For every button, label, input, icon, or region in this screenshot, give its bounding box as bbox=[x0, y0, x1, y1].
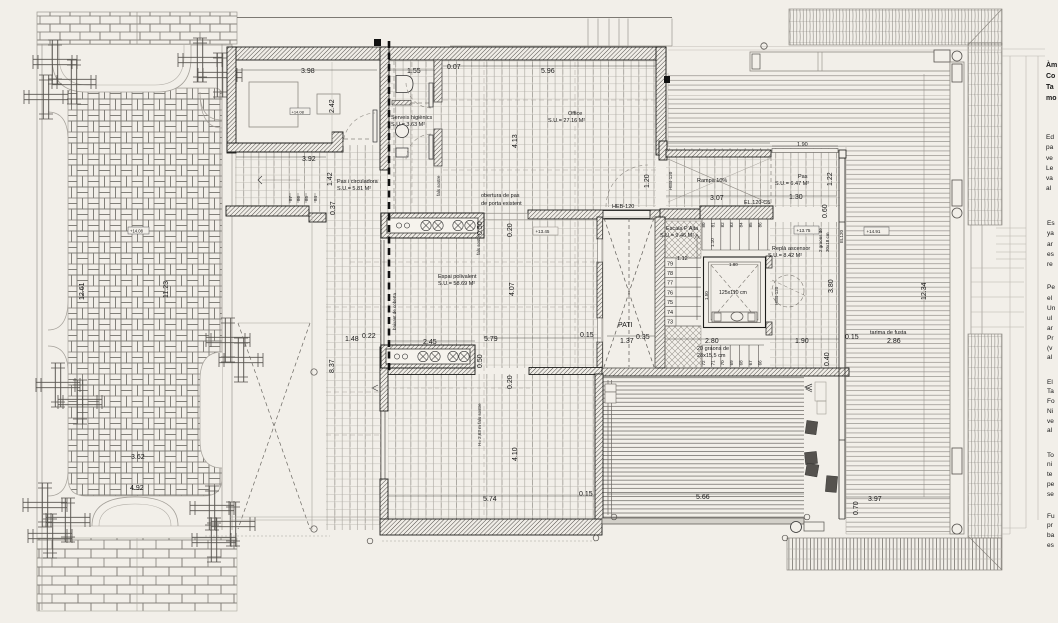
svg-text:ya: ya bbox=[1047, 230, 1054, 237]
svg-text:72: 72 bbox=[701, 360, 706, 366]
svg-text:28x15,5 cm: 28x15,5 cm bbox=[697, 353, 726, 359]
svg-text:Serveis higiènics: Serveis higiènics bbox=[391, 115, 433, 121]
svg-text:ve: ve bbox=[1046, 155, 1053, 162]
svg-text:Es: Es bbox=[1047, 220, 1055, 227]
svg-text:0.15: 0.15 bbox=[845, 334, 859, 341]
svg-text:87: 87 bbox=[288, 195, 293, 201]
svg-text:obertura de pas: obertura de pas bbox=[481, 193, 520, 199]
svg-text:5.74: 5.74 bbox=[483, 496, 497, 503]
svg-text:71: 71 bbox=[710, 360, 715, 366]
svg-text:fals sostre: fals sostre bbox=[476, 234, 481, 255]
svg-text:1.30: 1.30 bbox=[789, 194, 803, 201]
svg-text:de porta existent: de porta existent bbox=[481, 201, 522, 207]
svg-text:EL.120-C5: EL.120-C5 bbox=[744, 200, 770, 206]
svg-text:Un: Un bbox=[1047, 305, 1056, 312]
svg-text:125x110 cm: 125x110 cm bbox=[719, 290, 747, 296]
svg-text:0.22: 0.22 bbox=[362, 333, 376, 340]
svg-text:4.07: 4.07 bbox=[509, 282, 516, 296]
svg-text:HEB-120: HEB-120 bbox=[774, 286, 779, 305]
svg-text:0.15: 0.15 bbox=[579, 491, 593, 498]
svg-text:66: 66 bbox=[757, 360, 762, 366]
svg-text:1.80: 1.80 bbox=[729, 262, 738, 267]
svg-text:S.U.= 9.46 M²: S.U.= 9.46 M² bbox=[660, 233, 694, 239]
svg-text:78: 78 bbox=[667, 271, 673, 277]
svg-text:S.U.= 6.47 M²: S.U.= 6.47 M² bbox=[775, 181, 809, 187]
svg-text:12.34: 12.34 bbox=[921, 282, 928, 300]
svg-text:1.20: 1.20 bbox=[644, 174, 651, 188]
svg-text:ul: ul bbox=[1047, 315, 1053, 322]
svg-text:Ta: Ta bbox=[1047, 388, 1054, 395]
svg-text:re: re bbox=[1047, 261, 1053, 268]
svg-text:75: 75 bbox=[667, 300, 673, 306]
svg-text:86: 86 bbox=[757, 222, 762, 228]
svg-text:baixant de coberta: baixant de coberta bbox=[392, 292, 397, 330]
svg-text:0.50: 0.50 bbox=[477, 221, 484, 235]
svg-text:Rampa 10%: Rampa 10% bbox=[697, 178, 727, 184]
svg-text:S.U.= 8.42 M²: S.U.= 8.42 M² bbox=[768, 253, 802, 259]
svg-text:81: 81 bbox=[710, 222, 715, 228]
svg-text:79: 79 bbox=[667, 262, 673, 268]
svg-text:30x18 cm: 30x18 cm bbox=[825, 232, 830, 252]
svg-text:0.50: 0.50 bbox=[477, 354, 484, 368]
svg-text:1.48: 1.48 bbox=[345, 336, 359, 343]
svg-text:0.07: 0.07 bbox=[447, 64, 461, 71]
svg-text:73: 73 bbox=[667, 320, 673, 326]
svg-text:77: 77 bbox=[667, 281, 673, 287]
svg-text:+14.08: +14.08 bbox=[292, 109, 305, 114]
svg-text:3.80: 3.80 bbox=[828, 279, 835, 293]
svg-text:1.50: 1.50 bbox=[704, 291, 709, 300]
svg-text:68: 68 bbox=[739, 360, 744, 366]
svg-text:2.86: 2.86 bbox=[887, 338, 901, 345]
svg-text:Àm: Àm bbox=[1046, 60, 1057, 69]
svg-text:12.61: 12.61 bbox=[79, 282, 86, 300]
svg-text:se: se bbox=[1047, 491, 1054, 498]
svg-text:HEB-120: HEB-120 bbox=[612, 204, 634, 210]
svg-text:5.79: 5.79 bbox=[484, 336, 498, 343]
svg-text:1.90: 1.90 bbox=[797, 142, 808, 148]
svg-text:ni: ni bbox=[1047, 461, 1052, 468]
svg-text:ba: ba bbox=[1047, 532, 1055, 539]
svg-text:+13.75: +13.75 bbox=[797, 228, 811, 233]
svg-text:Ta: Ta bbox=[1046, 84, 1054, 91]
svg-text:te: te bbox=[1047, 471, 1053, 478]
svg-text:S.U.= 5.81 M²: S.U.= 5.81 M² bbox=[337, 186, 371, 192]
svg-text:84: 84 bbox=[313, 195, 318, 201]
svg-text:0.35: 0.35 bbox=[636, 334, 650, 341]
svg-text:8.37: 8.37 bbox=[329, 359, 336, 373]
svg-text:0.20: 0.20 bbox=[507, 223, 514, 237]
svg-text:Fo: Fo bbox=[1047, 398, 1055, 405]
svg-text:Co: Co bbox=[1046, 73, 1055, 80]
svg-text:0.60: 0.60 bbox=[822, 204, 829, 218]
svg-text:+14.08: +14.08 bbox=[130, 229, 144, 234]
svg-text:2.42: 2.42 bbox=[329, 99, 336, 113]
svg-text:3.98: 3.98 bbox=[301, 68, 315, 75]
svg-text:Office: Office bbox=[568, 111, 582, 117]
svg-text:EL120: EL120 bbox=[839, 229, 844, 243]
svg-text:74: 74 bbox=[667, 310, 673, 316]
svg-text:pr: pr bbox=[1047, 522, 1054, 529]
svg-text:3.62: 3.62 bbox=[131, 454, 145, 461]
svg-text:+13.45: +13.45 bbox=[536, 229, 550, 234]
svg-text:+14.91: +14.91 bbox=[867, 229, 881, 234]
svg-text:0.40: 0.40 bbox=[824, 352, 831, 366]
svg-text:HEB-120: HEB-120 bbox=[668, 171, 673, 190]
svg-text:1.22: 1.22 bbox=[827, 172, 834, 186]
svg-text:es: es bbox=[1047, 251, 1055, 258]
svg-text:Pr: Pr bbox=[1047, 335, 1054, 342]
svg-text:al: al bbox=[1047, 354, 1053, 361]
svg-text:69: 69 bbox=[729, 360, 734, 366]
svg-text:Pas: Pas bbox=[798, 174, 808, 180]
svg-text:5.96: 5.96 bbox=[541, 68, 555, 75]
svg-text:1.37: 1.37 bbox=[620, 338, 634, 345]
svg-text:ar: ar bbox=[1047, 241, 1054, 248]
svg-text:al: al bbox=[1047, 427, 1053, 434]
svg-text:84: 84 bbox=[739, 222, 744, 228]
svg-text:el: el bbox=[1047, 295, 1053, 302]
svg-text:es: es bbox=[1047, 542, 1055, 549]
svg-text:82: 82 bbox=[720, 222, 725, 228]
svg-text:11.23: 11.23 bbox=[163, 281, 170, 298]
svg-text:S.U.= 58.69 M²: S.U.= 58.69 M² bbox=[438, 281, 475, 287]
svg-text:4.13: 4.13 bbox=[512, 134, 519, 148]
svg-text:76: 76 bbox=[667, 290, 673, 296]
svg-text:4.10: 4.10 bbox=[512, 447, 519, 461]
svg-text:Fu: Fu bbox=[1047, 513, 1055, 520]
svg-text:Replà ascensor: Replà ascensor bbox=[772, 246, 810, 252]
svg-text:S.U.= 3.63 M²: S.U.= 3.63 M² bbox=[391, 122, 425, 128]
svg-text:Espai polivalent: Espai polivalent bbox=[438, 274, 477, 280]
svg-text:H= 2,63 m fals sostre: H= 2,63 m fals sostre bbox=[477, 403, 482, 446]
svg-text:5.66: 5.66 bbox=[696, 494, 710, 501]
svg-text:To: To bbox=[1047, 452, 1054, 459]
svg-text:70: 70 bbox=[720, 360, 725, 366]
svg-text:83: 83 bbox=[729, 222, 734, 228]
svg-text:86: 86 bbox=[296, 195, 301, 201]
svg-text:ve: ve bbox=[1047, 418, 1054, 425]
svg-text:Escala P Alta: Escala P Alta bbox=[666, 226, 699, 232]
svg-text:mo: mo bbox=[1046, 95, 1057, 102]
svg-text:4.92: 4.92 bbox=[130, 485, 144, 492]
svg-text:Ed: Ed bbox=[1046, 134, 1054, 141]
svg-text:80: 80 bbox=[701, 222, 706, 228]
svg-text:pa: pa bbox=[1046, 144, 1054, 151]
svg-text:al: al bbox=[1046, 185, 1052, 192]
svg-text:67: 67 bbox=[748, 360, 753, 366]
svg-text:va: va bbox=[1046, 175, 1053, 182]
svg-text:ar: ar bbox=[1047, 325, 1054, 332]
svg-text:85: 85 bbox=[748, 222, 753, 228]
svg-text:1.42: 1.42 bbox=[327, 172, 334, 186]
svg-text:1.10: 1.10 bbox=[710, 238, 715, 247]
svg-text:0.20: 0.20 bbox=[507, 375, 514, 389]
svg-text:S.U.= 27.16 M²: S.U.= 27.16 M² bbox=[548, 118, 585, 124]
svg-text:85: 85 bbox=[304, 195, 309, 201]
svg-text:20 graons de: 20 graons de bbox=[697, 346, 729, 352]
svg-text:Pas i circuladora: Pas i circuladora bbox=[337, 179, 379, 185]
svg-text:PATI: PATI bbox=[618, 322, 633, 329]
svg-text:0.70: 0.70 bbox=[853, 501, 860, 515]
svg-text:1.12: 1.12 bbox=[677, 256, 688, 262]
svg-text:2.45: 2.45 bbox=[423, 339, 437, 346]
svg-text:Pe: Pe bbox=[1047, 284, 1055, 291]
svg-text:pe: pe bbox=[1047, 481, 1055, 488]
svg-text:0.37: 0.37 bbox=[330, 201, 337, 215]
svg-text:(v: (v bbox=[1047, 345, 1053, 352]
svg-text:Ni: Ni bbox=[1047, 408, 1053, 415]
svg-text:El: El bbox=[1047, 379, 1053, 386]
svg-text:tarima de fusta: tarima de fusta bbox=[870, 330, 907, 336]
svg-text:1.55: 1.55 bbox=[407, 68, 421, 75]
svg-text:fals sostre: fals sostre bbox=[436, 175, 441, 196]
svg-text:Le: Le bbox=[1046, 165, 1054, 172]
